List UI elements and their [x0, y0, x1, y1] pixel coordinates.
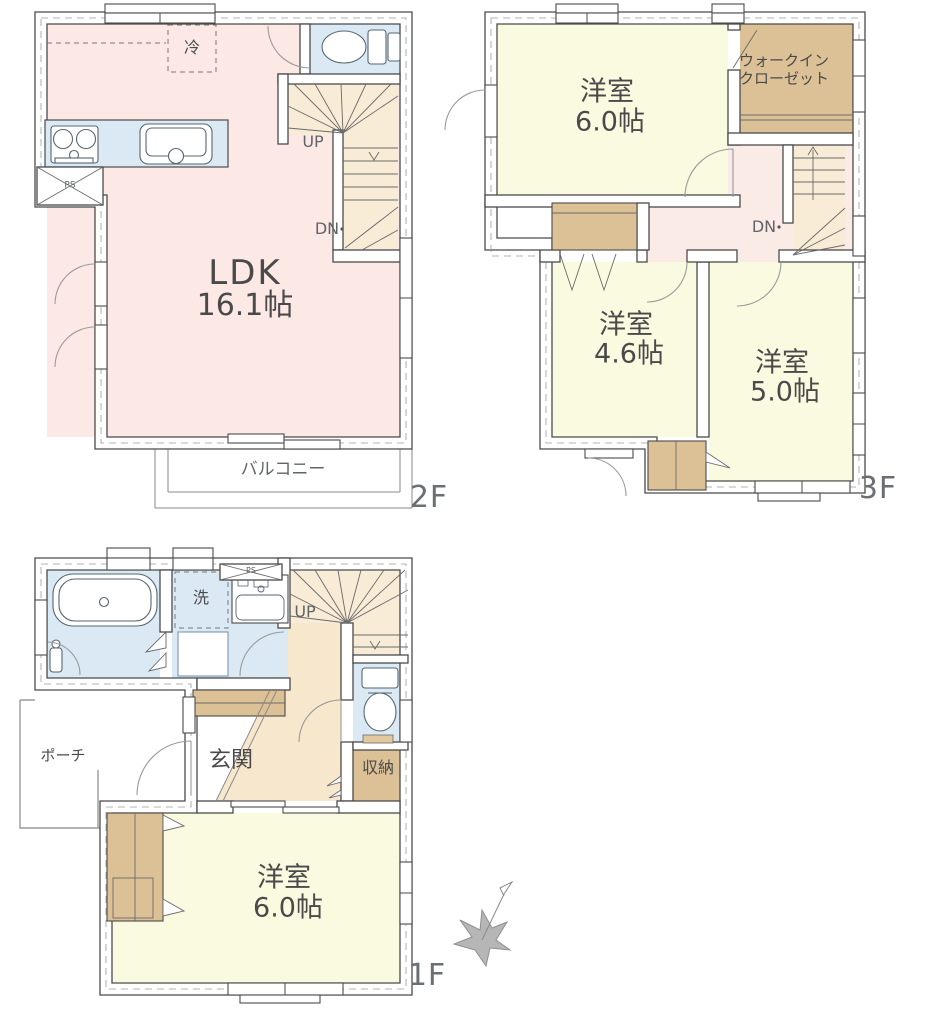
bathtub-icon: [53, 574, 157, 626]
stairs-down-label-3f: DN: [752, 219, 776, 235]
stairs-up-label-1f: UP: [294, 604, 315, 620]
pipe-space-label-1f: PS: [246, 567, 256, 575]
floor-label-3f: 3F: [859, 474, 897, 504]
pipe-space-label-2f: PS: [64, 182, 75, 191]
toilet-icon-1f: [362, 668, 398, 731]
floor-label-2f: 2F: [410, 483, 448, 513]
wic-label-line2: クローゼット: [739, 72, 829, 87]
floorplan-drawing: [0, 0, 933, 1024]
kitchen-counter: [45, 120, 228, 167]
sink-icon: [140, 124, 212, 164]
bedroom1-name: 洋室: [580, 79, 634, 106]
floor-label-1f: 1F: [408, 961, 446, 991]
bedroom-size-1f: 6.0帖: [253, 895, 323, 922]
stove-icon: [51, 126, 98, 163]
north-arrow-icon: [454, 882, 512, 966]
storage-label: 収納: [362, 760, 394, 776]
balcony-label: バルコニー: [241, 462, 326, 479]
stairs-3f: [793, 145, 845, 255]
bedroom2-size: 4.6帖: [594, 341, 664, 368]
vanity-icon: [232, 575, 288, 623]
stairs-up-label-2f: UP: [302, 134, 323, 150]
wic-label-line1: ウォークイン: [739, 54, 829, 69]
bedroom2-name: 洋室: [599, 312, 653, 339]
front-door-arc: [137, 741, 191, 795]
shower-pan: [178, 632, 228, 676]
bedroom3-size: 5.0帖: [750, 379, 820, 406]
hall-1f: [288, 623, 341, 801]
fridge-label: 冷: [184, 40, 200, 56]
floorplan-canvas: 冷 UP DN LDK 16.1帖 PS バルコニー 2F 洋室 6.0帖 ウォ…: [0, 0, 933, 1024]
bedroom1-size: 6.0帖: [575, 109, 645, 136]
bedroom-name-1f: 洋室: [257, 865, 311, 892]
floor-1f-plan: [20, 548, 412, 1003]
entrance-label: 玄関: [209, 750, 253, 772]
bedroom3-name: 洋室: [755, 350, 809, 377]
ldk-size: 16.1帖: [197, 291, 294, 321]
stairs-down-label-2f: DN: [315, 221, 339, 237]
ldk-name: LDK: [208, 256, 281, 290]
entrance-sidelight: [183, 697, 195, 733]
porch-label: ポーチ: [40, 749, 85, 764]
laundry-label: 洗: [193, 590, 209, 606]
